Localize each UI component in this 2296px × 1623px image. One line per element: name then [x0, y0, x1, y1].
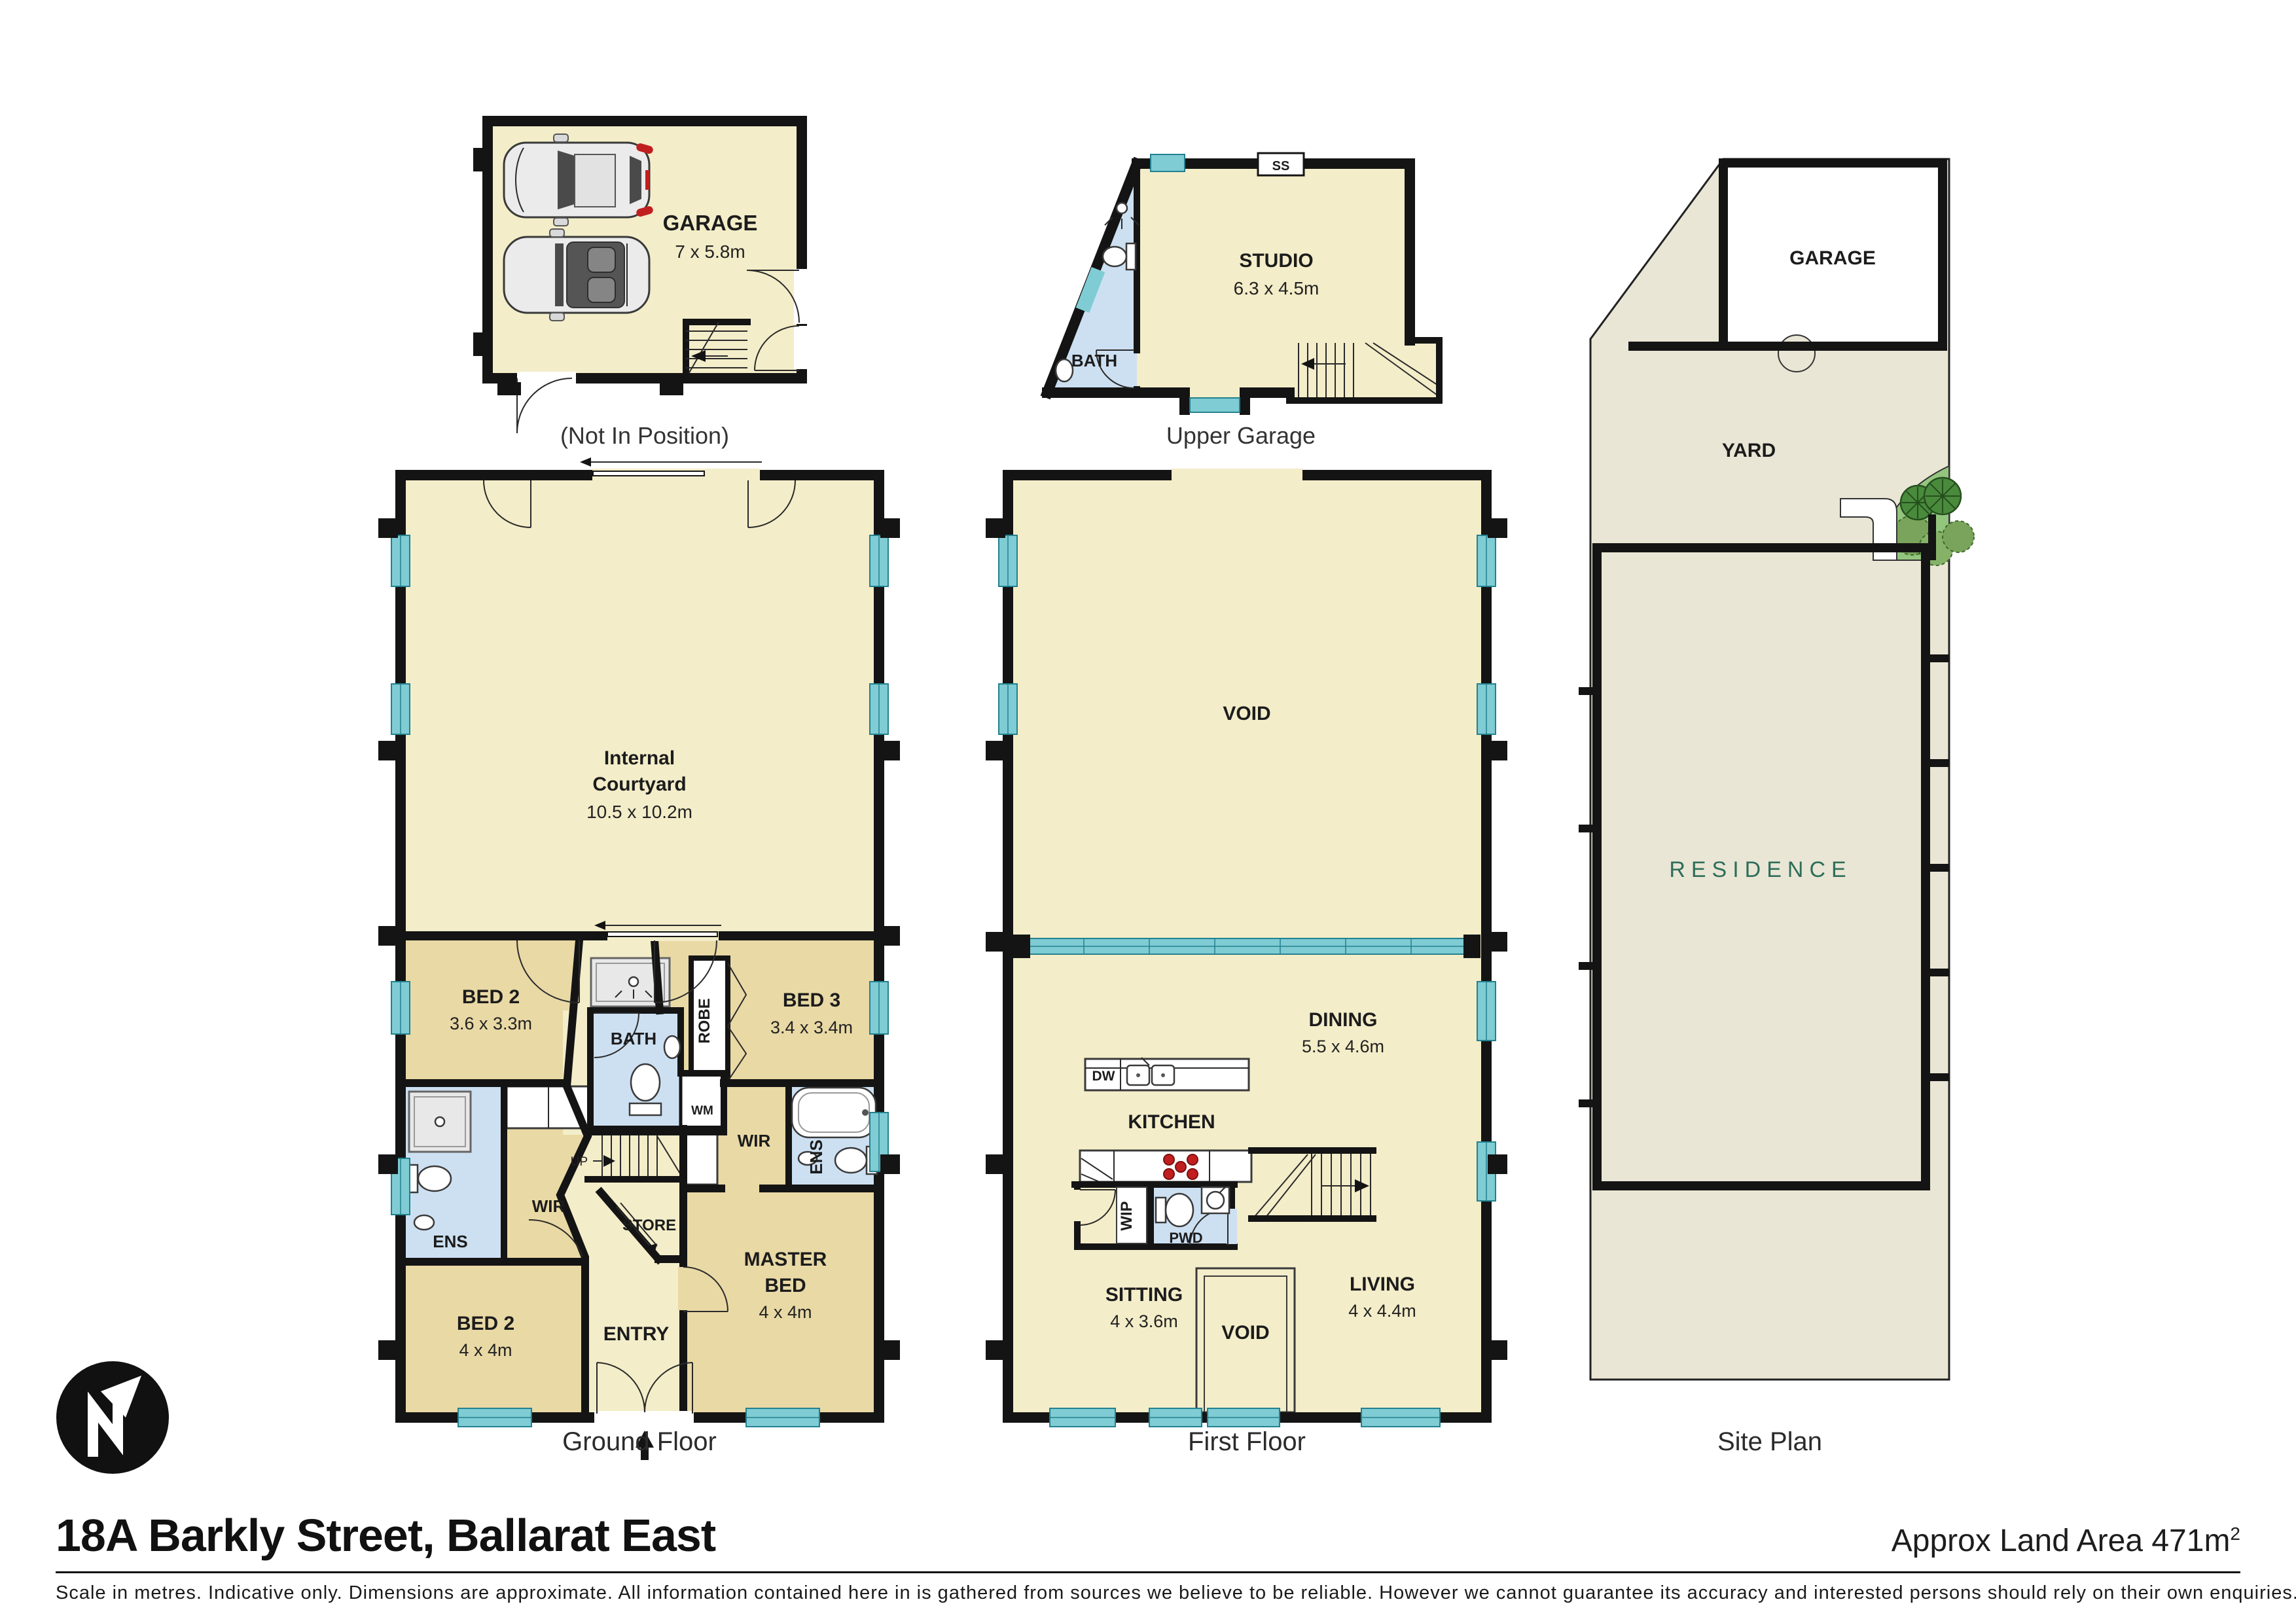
door-gap: [1072, 1190, 1083, 1221]
caption-site-plan: Site Plan: [1717, 1427, 1822, 1456]
wall-stub: [1579, 962, 1597, 970]
wall-stub: [1488, 932, 1507, 952]
door-gap: [725, 1184, 759, 1193]
sliding-door: [607, 932, 717, 936]
ground-floor-plan: Internal Courtyard 10.5 x 10.2m BED 2 3.…: [401, 457, 879, 1460]
room-label-master-2: BED: [764, 1275, 806, 1296]
slider-arrow-icon: [580, 457, 591, 467]
site-label-residence: RESIDENCE: [1669, 857, 1852, 882]
sliding-door: [593, 471, 704, 476]
wall-stub: [880, 1154, 900, 1174]
disclaimer-text: Scale in metres. Indicative only. Dimens…: [56, 1582, 2255, 1604]
wall-stub: [1926, 654, 1949, 662]
stairs-up-label: UP: [571, 1155, 588, 1169]
wall-stub: [1488, 1340, 1507, 1360]
wall-stub: [880, 741, 900, 760]
door-gap: [678, 1267, 689, 1310]
wall-opening: [1172, 469, 1302, 482]
room-label-ens-left: ENS: [433, 1232, 467, 1251]
room-dims-bed2b: 4 x 4m: [459, 1340, 512, 1360]
site-label-garage: GARAGE: [1789, 247, 1876, 269]
room-label-bath: BATH: [611, 1029, 656, 1048]
wall-stub: [986, 1154, 1005, 1174]
room-label-ens-right: ENS: [806, 1139, 826, 1174]
wall-stub: [1926, 759, 1949, 767]
wall-stub: [497, 382, 521, 395]
ss-label: SS: [1272, 159, 1290, 173]
wall-stub: [1488, 1154, 1507, 1174]
gate-arc: [1778, 335, 1815, 372]
site-plan: RESIDENCE GARAGE YARD: [1590, 159, 1974, 1380]
car-convertible-icon: [504, 229, 649, 321]
wall-stub: [378, 1154, 398, 1174]
room-dims-studio: 6.3 x 4.5m: [1234, 278, 1319, 298]
wall-stub: [880, 926, 900, 946]
label-dw: DW: [1092, 1069, 1115, 1084]
room-label-wir-left: WIR: [532, 1196, 565, 1216]
wall-stub: [1488, 741, 1507, 760]
room-label-dining: DINING: [1309, 1009, 1378, 1031]
door-gap: [794, 269, 811, 324]
wall-stub: [1926, 864, 1949, 872]
room-label-courtyard-2: Courtyard: [592, 774, 686, 795]
wall-stub: [986, 741, 1005, 760]
courtyard-floor: [401, 475, 879, 936]
door-gap: [517, 372, 576, 389]
tree-icon: [1924, 478, 1961, 514]
land-area-sup: 2: [2230, 1524, 2240, 1544]
window: [1190, 398, 1240, 412]
caption-first-floor: First Floor: [1188, 1427, 1306, 1456]
site-label-yard: YARD: [1722, 440, 1776, 461]
room-dims-bed2a: 3.6 x 3.3m: [450, 1014, 532, 1033]
wall-stub: [1579, 1099, 1597, 1107]
stair-floor: [1289, 340, 1439, 401]
caption-upper-garage: Upper Garage: [1166, 422, 1316, 449]
wall-stub: [473, 332, 488, 356]
door-gap: [794, 326, 811, 369]
room-label-store: STORE: [622, 1217, 676, 1234]
floorplan-canvas: GARAGE 7 x 5.8m SS: [0, 0, 2296, 1623]
wall-stub: [1579, 825, 1597, 832]
wall-stub: [1926, 1073, 1949, 1081]
washing-machine: [681, 1073, 724, 1129]
wall-stub: [986, 1340, 1005, 1360]
wall-stub: [986, 518, 1005, 538]
room-label-bath: BATH: [1071, 351, 1117, 370]
wall-stub: [986, 932, 1005, 952]
room-label-wm: WM: [691, 1104, 713, 1118]
kitchen-bench: [1080, 1150, 1251, 1182]
room-label-courtyard-1: Internal: [604, 747, 675, 769]
first-floor-plan: VOID DINING 5.5 x 4.6m DW KITCHEN WIP PW…: [1008, 469, 1486, 1418]
room-dims-bed3: 3.4 x 3.4m: [770, 1018, 853, 1037]
room-dims-master: 4 x 4m: [759, 1302, 812, 1322]
room-label-garage: GARAGE: [663, 211, 758, 235]
land-area: Approx Land Area 471m2: [1892, 1523, 2240, 1559]
wall-stub: [378, 1340, 398, 1360]
wall-stub: [1488, 518, 1507, 538]
room-label-void-small: VOID: [1221, 1322, 1269, 1344]
room-label-studio: STUDIO: [1239, 250, 1313, 272]
wall-stub: [1926, 969, 1949, 976]
wall-stub: [378, 518, 398, 538]
wall-stub: [1579, 687, 1597, 695]
room-label-robe: ROBE: [696, 998, 713, 1043]
wall-stub: [378, 926, 398, 946]
wall-stub: [473, 148, 488, 171]
room-label-pwd: PWD: [1169, 1230, 1202, 1246]
room-label-master-1: MASTER: [744, 1249, 827, 1270]
land-area-text: Approx Land Area 471m: [1892, 1524, 2231, 1558]
divider-rule: [56, 1571, 2240, 1573]
room-dims-living: 4 x 4.4m: [1348, 1301, 1416, 1321]
entry-door-gap: [594, 1411, 694, 1428]
ens-right-fixtures: [792, 1088, 877, 1174]
room-dims-dining: 5.5 x 4.6m: [1302, 1037, 1384, 1056]
window-band: [1013, 935, 1480, 958]
room-label-sitting: SITTING: [1105, 1284, 1183, 1306]
caption-ground-floor: Ground Floor: [562, 1427, 717, 1456]
room-dims-sitting: 4 x 3.6m: [1110, 1311, 1178, 1331]
room-label-void: VOID: [1223, 703, 1270, 724]
wall-stub: [378, 741, 398, 760]
wall-stub: [880, 1340, 900, 1360]
room-label-entry: ENTRY: [603, 1323, 670, 1345]
room-label-living: LIVING: [1350, 1274, 1415, 1295]
room-label-wir-right: WIR: [738, 1131, 771, 1150]
room-label-bed3: BED 3: [783, 990, 840, 1011]
room-dims-garage: 7 x 5.8m: [675, 241, 745, 262]
title-bar: 18A Barkly Street, Ballarat East Approx …: [56, 1509, 2240, 1569]
room-label-bed2b: BED 2: [457, 1313, 514, 1334]
room-dims-courtyard: 10.5 x 10.2m: [586, 802, 692, 822]
wall-stub: [660, 382, 683, 395]
garage-plan: GARAGE 7 x 5.8m: [488, 121, 811, 433]
room-label-bed2a: BED 2: [462, 986, 520, 1008]
car-top-icon: [504, 134, 654, 226]
room-label-kitchen: KITCHEN: [1128, 1111, 1215, 1133]
upper-garage-plan: SS STUDIO 6.3 x 4.5m BATH: [1047, 153, 1439, 412]
wall-stub: [880, 518, 900, 538]
north-arrow-icon: [56, 1361, 169, 1474]
caption-garage: (Not In Position): [560, 422, 729, 449]
window: [1151, 154, 1185, 171]
page-title: 18A Barkly Street, Ballarat East: [56, 1509, 715, 1561]
room-label-wip: WIP: [1118, 1201, 1136, 1230]
floorplan-page: GARAGE 7 x 5.8m SS: [0, 0, 2296, 1623]
